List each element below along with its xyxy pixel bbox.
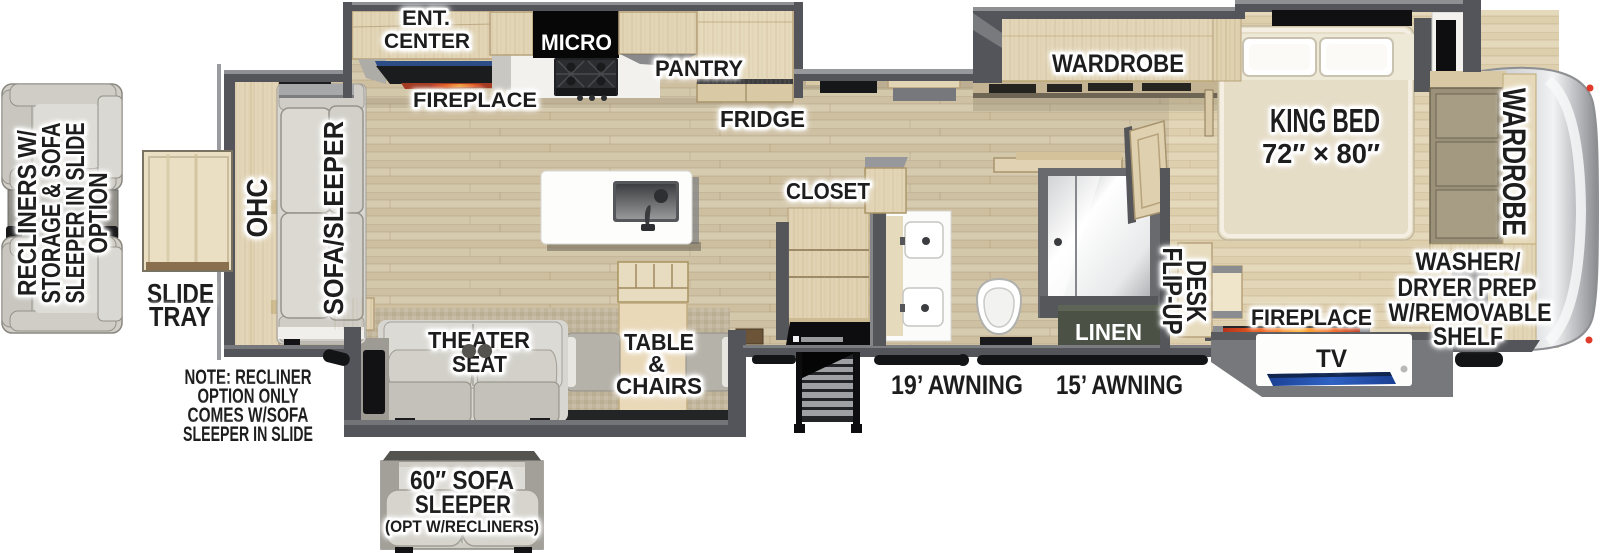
svg-text:OHC: OHC: [242, 178, 274, 237]
svg-text:ENT.: ENT.: [402, 7, 450, 30]
svg-text:TV: TV: [1316, 345, 1347, 373]
svg-text:OPTION: OPTION: [83, 173, 113, 254]
svg-text:15’ AWNING: 15’ AWNING: [1056, 370, 1183, 400]
svg-text:FIREPLACE: FIREPLACE: [1251, 305, 1372, 330]
svg-text:WARDROBE: WARDROBE: [1052, 50, 1184, 78]
svg-text:LINEN: LINEN: [1075, 319, 1142, 345]
svg-text:DRYER PREP: DRYER PREP: [1398, 274, 1537, 302]
svg-text:72″ × 80″: 72″ × 80″: [1262, 138, 1380, 169]
svg-text:DESK: DESK: [1181, 260, 1212, 322]
svg-text:CLOSET: CLOSET: [786, 178, 870, 204]
svg-text:TRAY: TRAY: [149, 301, 211, 332]
svg-text:FRIDGE: FRIDGE: [720, 106, 805, 132]
svg-text:CHAIRS: CHAIRS: [616, 373, 702, 399]
svg-text:MICRO: MICRO: [541, 30, 612, 55]
svg-text:SOFA/SLEEPER: SOFA/SLEEPER: [318, 121, 349, 315]
svg-text:SLEEPER IN SLIDE: SLEEPER IN SLIDE: [183, 423, 313, 446]
svg-text:SHELF: SHELF: [1433, 323, 1503, 351]
svg-text:CENTER: CENTER: [384, 30, 470, 53]
svg-text:SLEEPER: SLEEPER: [415, 491, 511, 519]
svg-text:FIREPLACE: FIREPLACE: [413, 89, 537, 112]
svg-text:19’ AWNING: 19’ AWNING: [891, 370, 1023, 400]
svg-text:PANTRY: PANTRY: [655, 56, 743, 81]
svg-text:WARDROBE: WARDROBE: [1496, 88, 1532, 236]
svg-text:WASHER/: WASHER/: [1416, 248, 1521, 276]
svg-text:KING BED: KING BED: [1270, 102, 1380, 139]
svg-text:(OPT W/RECLINERS): (OPT W/RECLINERS): [385, 517, 539, 536]
